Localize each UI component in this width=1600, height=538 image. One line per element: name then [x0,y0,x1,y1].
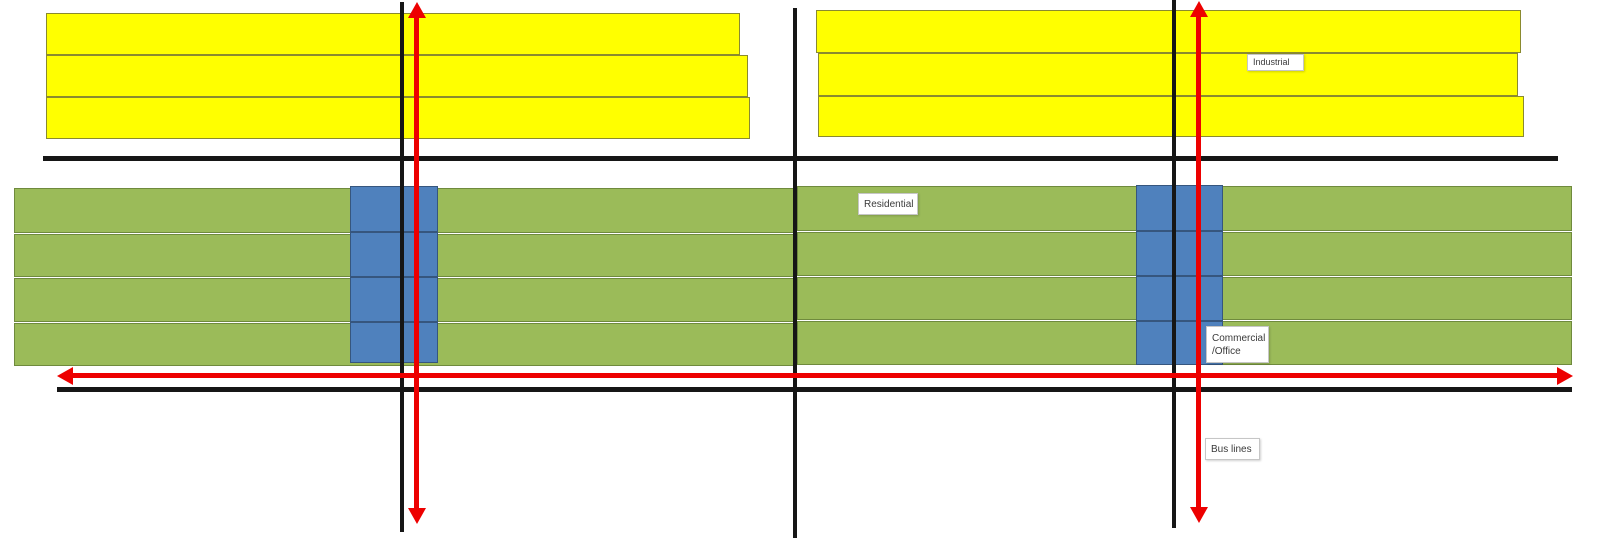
corridor-zoning-diagram: IndustrialResidentialCommercial/OfficeBu… [0,0,1600,538]
commercial-office-block [1136,231,1223,276]
bus-arrowhead-down [408,508,426,524]
industrial-block [46,13,740,55]
commercial-office-label-text: Commercial [1212,332,1263,345]
commercial-office-block [350,277,438,322]
commercial-office-block [1136,276,1223,321]
bus-arrowhead-left [57,367,73,385]
bus-lines-label-text: Bus lines [1211,443,1254,456]
residential-label: Residential [858,193,918,215]
road-bottom [57,387,1572,392]
industrial-block [818,96,1524,137]
industrial-block [46,55,748,97]
road-vertical-middle [793,8,797,538]
bus-arrowhead-up [408,2,426,18]
industrial-label-text: Industrial [1253,57,1298,69]
road-vertical-left [400,2,404,532]
industrial-block [816,10,1521,53]
residential-label-text: Residential [864,198,912,211]
bus-line-vertical-left [414,15,419,511]
road-top [43,156,1558,161]
commercial-office-label-text: /Office [1212,345,1263,358]
commercial-office-block [350,232,438,277]
bus-line-horizontal [70,373,1560,378]
commercial-office-block [350,186,438,232]
bus-arrowhead-right [1557,367,1573,385]
commercial-office-block [350,322,438,363]
bus-arrowhead-down [1190,507,1208,523]
commercial-office-label: Commercial/Office [1206,326,1269,363]
industrial-block [46,97,750,139]
industrial-block [818,53,1518,96]
bus-line-vertical-right [1196,14,1201,510]
road-vertical-right [1172,0,1176,528]
industrial-label: Industrial [1247,54,1304,71]
bus-lines-label: Bus lines [1205,438,1260,460]
bus-arrowhead-up [1190,1,1208,17]
commercial-office-block [1136,185,1223,231]
